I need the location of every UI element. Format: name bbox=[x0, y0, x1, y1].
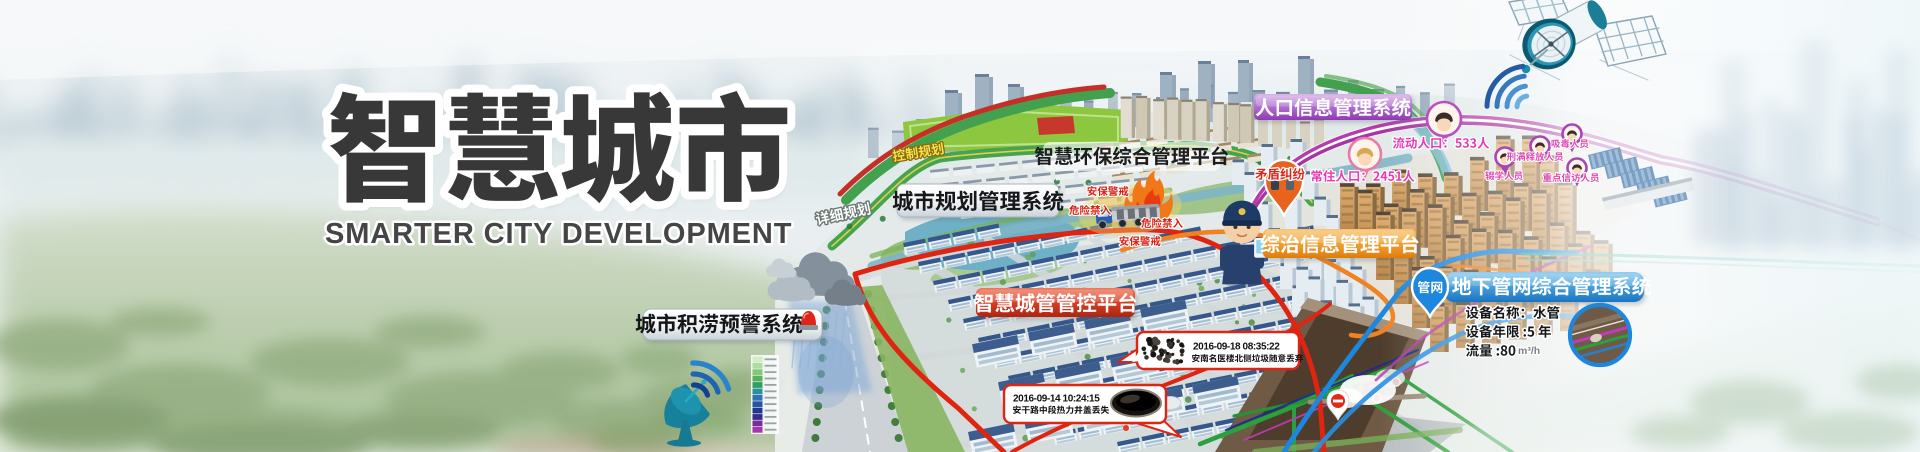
svg-text:2016-09-14 10:24:15: 2016-09-14 10:24:15 bbox=[1013, 394, 1100, 405]
svg-text:SMARTER CITY DEVELOPMENT: SMARTER CITY DEVELOPMENT bbox=[325, 218, 792, 250]
svg-text:2016-09-18 08:35:22: 2016-09-18 08:35:22 bbox=[1193, 342, 1280, 353]
svg-text:m³/h: m³/h bbox=[1518, 345, 1540, 357]
